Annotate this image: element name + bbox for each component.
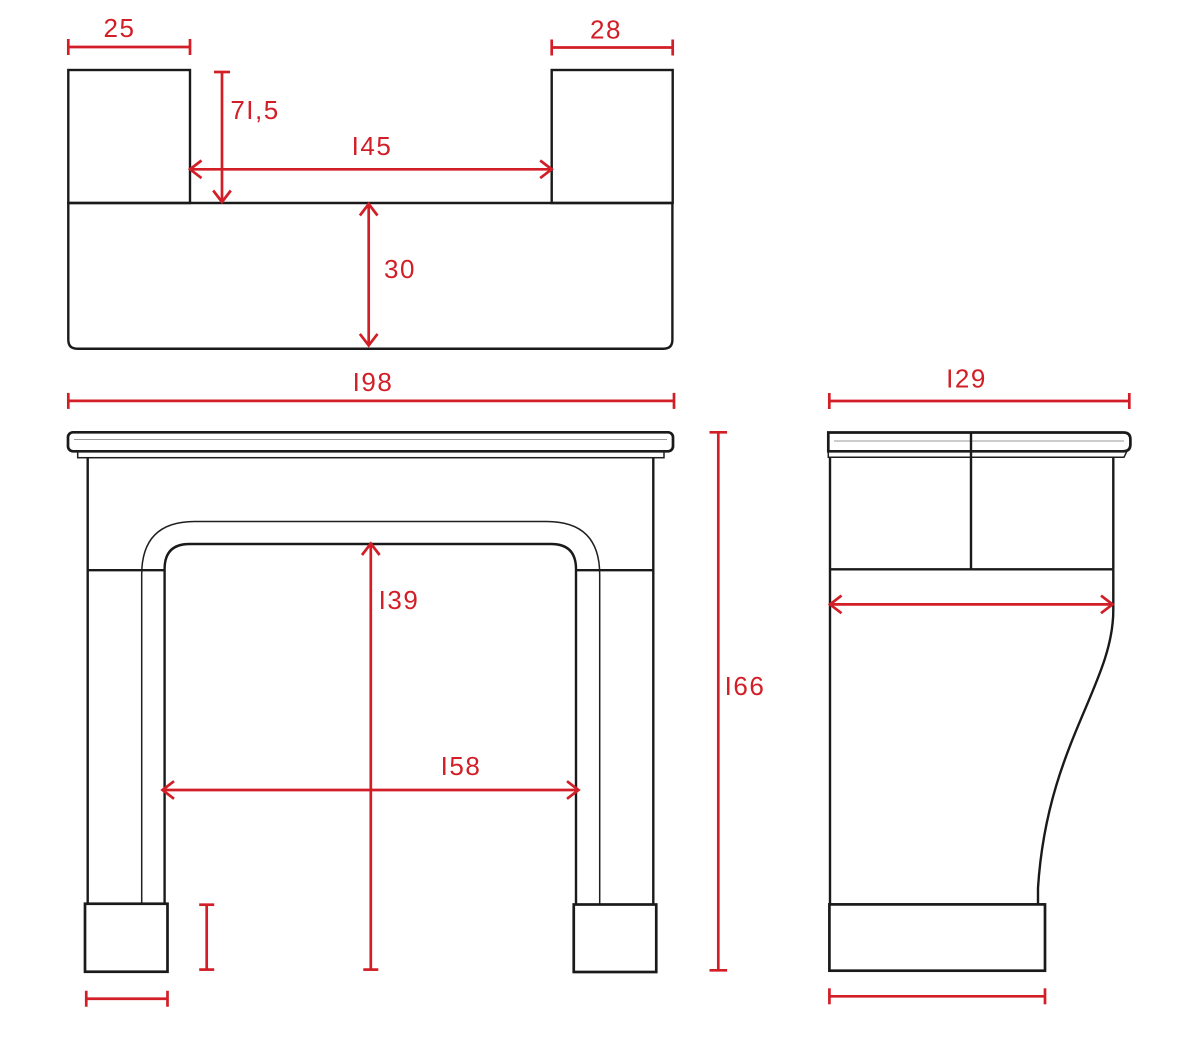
svg-text:28: 28 <box>590 15 622 45</box>
svg-text:30: 30 <box>384 254 416 284</box>
svg-text:I98: I98 <box>353 367 394 397</box>
svg-text:7I,5: 7I,5 <box>230 95 279 125</box>
svg-text:I58: I58 <box>441 751 482 781</box>
svg-text:25: 25 <box>104 13 136 43</box>
svg-text:I45: I45 <box>352 131 393 161</box>
svg-text:I66: I66 <box>725 671 766 701</box>
svg-text:I29: I29 <box>946 364 987 394</box>
svg-text:I39: I39 <box>379 585 420 615</box>
